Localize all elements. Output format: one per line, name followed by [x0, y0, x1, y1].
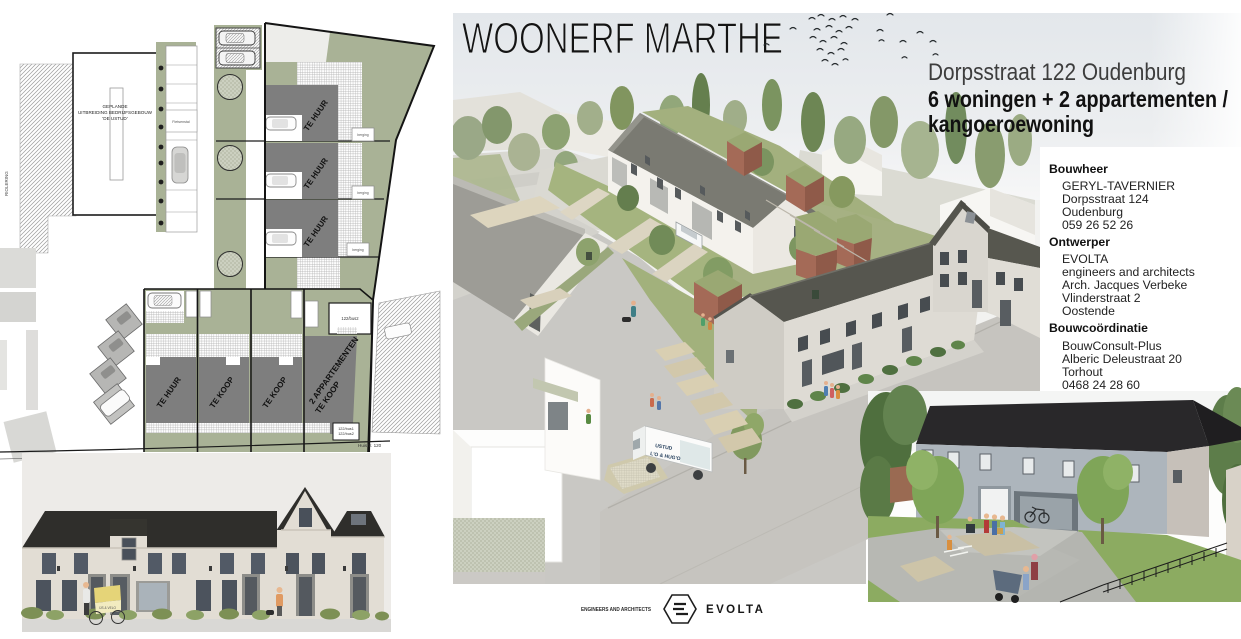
svg-text:6 woningen + 2 appartementen /: 6 woningen + 2 appartementen /	[928, 86, 1229, 112]
svg-text:berging: berging	[357, 133, 368, 137]
svg-text:Bouwcoördinatie: Bouwcoördinatie	[1049, 321, 1148, 335]
svg-text:Vlinderstraat 2: Vlinderstraat 2	[1062, 291, 1141, 305]
svg-text:Huisnr. 120: Huisnr. 120	[358, 443, 382, 448]
svg-text:GEPLANDE: GEPLANDE	[102, 104, 127, 109]
svg-text:EVOLTA: EVOLTA	[1062, 252, 1109, 266]
svg-text:Dorpsstraat 122 Oudenburg: Dorpsstraat 122 Oudenburg	[928, 59, 1186, 86]
svg-text:Oostende: Oostende	[1062, 304, 1115, 318]
svg-text:WOONERF MARTHE: WOONERF MARTHE	[462, 15, 783, 63]
svg-text:kangoeroewoning: kangoeroewoning	[928, 111, 1094, 137]
svg-text:GERYL-TAVERNIER: GERYL-TAVERNIER	[1062, 179, 1175, 193]
svg-text:Alberic Deleustraat 20: Alberic Deleustraat 20	[1062, 352, 1182, 366]
svg-text:122/bus2: 122/bus2	[338, 432, 354, 436]
svg-text:ENGINEERS AND ARCHITECTS: ENGINEERS AND ARCHITECTS	[581, 607, 651, 613]
svg-text:EVOLTA: EVOLTA	[706, 604, 765, 616]
svg-text:Bouwheer: Bouwheer	[1049, 162, 1108, 176]
svg-text:berging: berging	[357, 191, 368, 195]
svg-text:122/bus2: 122/bus2	[341, 316, 359, 321]
svg-text:IJS & VELO: IJS & VELO	[99, 606, 117, 610]
svg-text:Arch. Jacques Verbeke: Arch. Jacques Verbeke	[1062, 278, 1188, 292]
svg-text:UITBREIDING BEDRIJFSGEBOUW: UITBREIDING BEDRIJFSGEBOUW	[78, 110, 153, 115]
svg-text:0468 24 28 60: 0468 24 28 60	[1062, 378, 1140, 392]
svg-text:059 26 52 26: 059 26 52 26	[1062, 218, 1133, 232]
svg-text:Dorpsstraat 124: Dorpsstraat 124	[1062, 192, 1149, 206]
svg-text:RIOLERING: RIOLERING	[4, 171, 9, 196]
svg-text:Torhout: Torhout	[1062, 365, 1103, 379]
svg-text:Oudenburg: Oudenburg	[1062, 205, 1123, 219]
svg-text:'DE USTUD': 'DE USTUD'	[102, 116, 127, 121]
svg-text:engineers and architects: engineers and architects	[1062, 265, 1195, 279]
svg-text:berging: berging	[352, 248, 363, 252]
svg-text:Fietsenstal: Fietsenstal	[172, 120, 190, 124]
svg-text:122/bus1: 122/bus1	[338, 427, 354, 431]
svg-text:Ontwerper: Ontwerper	[1049, 235, 1110, 249]
svg-text:BouwConsult-Plus: BouwConsult-Plus	[1062, 339, 1162, 353]
